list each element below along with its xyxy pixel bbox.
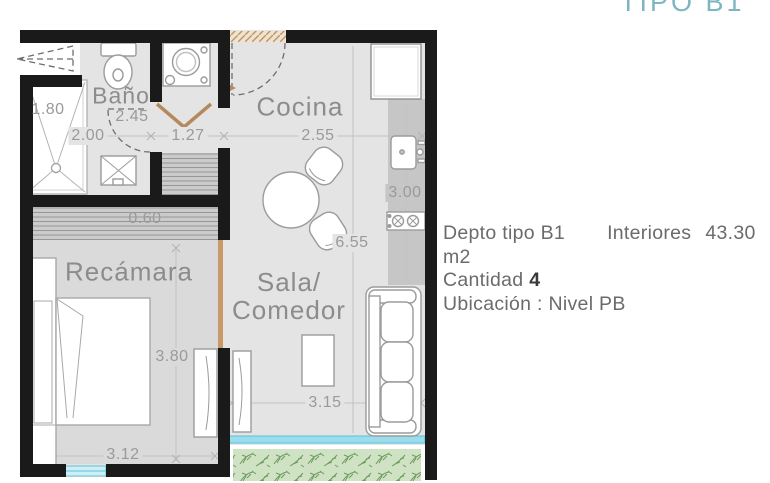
tv-panel-icon: [233, 351, 251, 432]
dining-table-icon: [263, 172, 319, 228]
room-label-bano: Baño: [92, 83, 150, 110]
dim-bath-length: 2.45: [112, 108, 151, 126]
wardrobe-icon: [30, 258, 56, 465]
dim-kitchen-length: 3.00: [385, 184, 424, 202]
bed-icon: [56, 298, 150, 425]
garden: [232, 448, 422, 482]
room-label-recamara: Recámara: [65, 257, 193, 288]
dim-bath-width: 2.00: [68, 127, 107, 145]
hall-closet-hatch: [162, 153, 218, 196]
fridge-icon: [371, 44, 421, 99]
dim-bedroom-width: 3.12: [103, 446, 142, 464]
sliding-door: [218, 240, 223, 348]
bedroom-window: [64, 466, 106, 476]
dim-closet-depth: 0.60: [125, 210, 164, 228]
vanity-sink-icon: [101, 156, 136, 185]
dim-laundry-width: 1.27: [168, 127, 207, 145]
sofa-icon: [366, 287, 421, 436]
washing-machine-icon: [163, 43, 210, 86]
tv-panel-icon: [194, 349, 217, 437]
dim-kitchen-width: 2.55: [298, 127, 337, 145]
location-value: Ubicación : Nivel PB: [443, 293, 626, 315]
room-label-cocina: Cocina: [257, 92, 344, 123]
dim-shower-width: 1.80: [28, 101, 67, 119]
dim-interior-length: 6.55: [332, 234, 371, 252]
unit-info-line1: Depto tipo B1Interiores43.30 m2: [443, 222, 770, 269]
quantity-value: 4: [529, 269, 540, 291]
sheet-title: TIPO B1: [620, 0, 745, 18]
dim-living-width: 3.15: [305, 394, 344, 412]
room-label-sala-comedor: Sala/ Comedor: [232, 268, 346, 324]
interiors-label: Interiores: [607, 222, 691, 244]
stove-icon: [387, 212, 425, 230]
unit-type: Depto tipo B1: [443, 222, 565, 244]
floorplan-sheet: Baño Cocina Recámara Sala/ Comedor 1.80 …: [0, 0, 770, 483]
room-label-sala: Sala/: [232, 268, 346, 296]
coffee-table-icon: [302, 335, 334, 386]
entry-threshold: [228, 31, 286, 42]
room-label-comedor: Comedor: [232, 296, 346, 324]
windows-and-garden: [224, 436, 425, 483]
living-window: [224, 436, 425, 443]
dim-bedroom-length: 3.80: [152, 348, 191, 366]
unit-info-line2: Cantidad 4: [443, 269, 770, 293]
unit-info: Depto tipo B1Interiores43.30 m2 Cantidad…: [443, 222, 770, 316]
quantity-label: Cantidad: [443, 269, 523, 291]
unit-info-line3: Ubicación : Nivel PB: [443, 293, 770, 317]
shaft-vent-icon: [10, 43, 80, 75]
